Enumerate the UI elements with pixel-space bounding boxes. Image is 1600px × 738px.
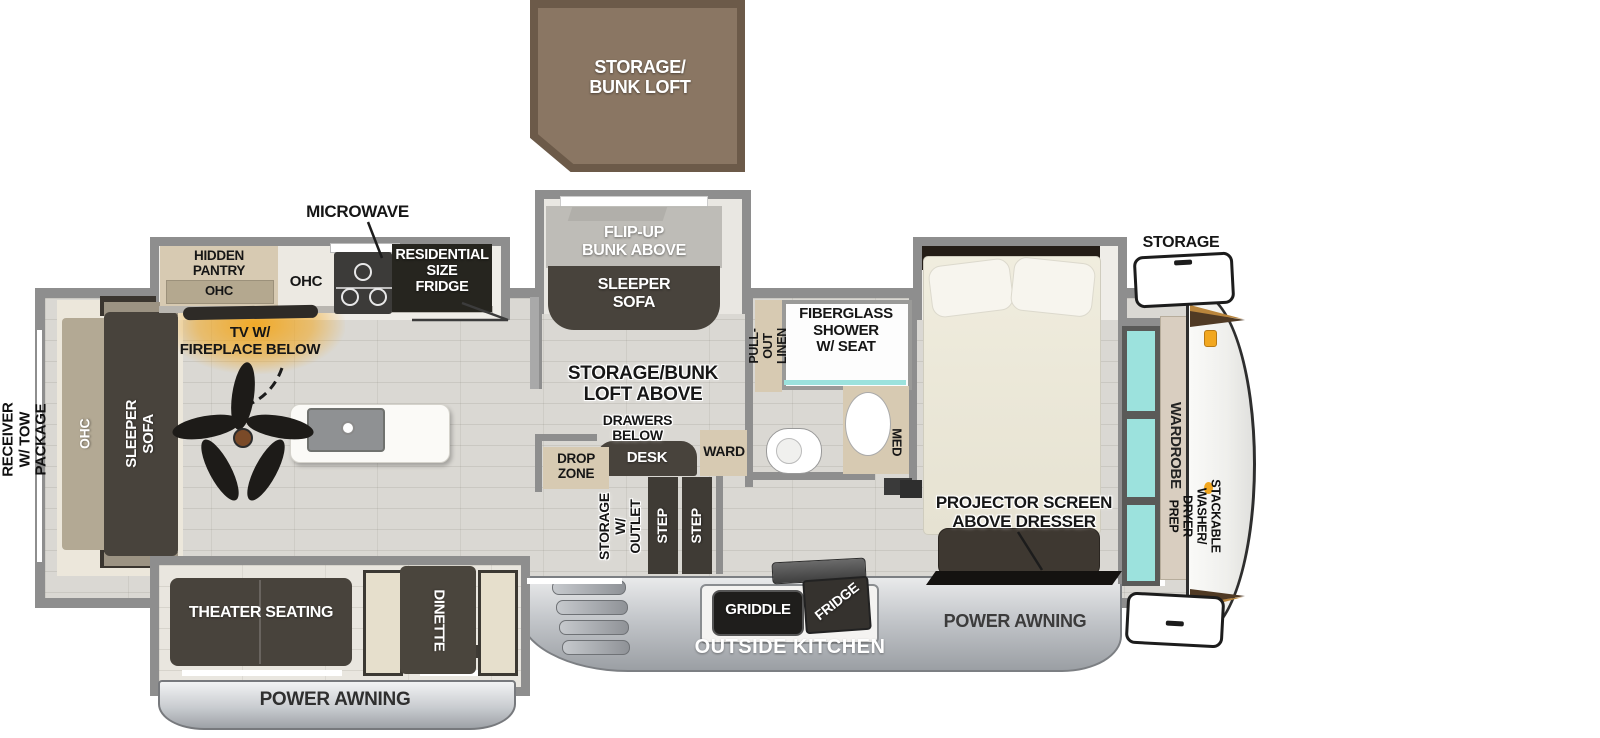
shower-label: FIBERGLASS SHOWER W/ SEAT [782, 306, 910, 356]
storage-outlet-label: STORAGE W/ OUTLET [598, 476, 642, 578]
med-label: MED [884, 412, 908, 472]
outside-kitchen-label: OUTSIDE KITCHEN [640, 636, 940, 658]
ward-label: WARD [698, 444, 750, 459]
dresser [938, 528, 1100, 576]
desk-wall-v [535, 434, 542, 492]
theater-seam [259, 580, 261, 664]
wall-stub [530, 297, 542, 389]
storage-bunk-loft-shape: STORAGE/ BUNK LOFT [530, 0, 745, 172]
entry-step-3 [559, 620, 629, 635]
tv-fireplace-label: TV W/ FIREPLACE BELOW [158, 325, 342, 358]
entry-step-2 [556, 600, 628, 615]
slide-sleeper-sofa-label: SLEEPER SOFA [548, 276, 720, 311]
shower-sill [784, 380, 906, 385]
drawers-below-label: DRAWERS BELOW [585, 413, 690, 444]
toilet-bowl [776, 438, 802, 464]
desk-label: DESK [597, 450, 697, 467]
pillow-left [927, 257, 1015, 319]
island-faucet [341, 421, 355, 435]
stove [334, 252, 392, 314]
rear-sleeper-sofa-label: SLEEPER SOFA [104, 312, 178, 556]
tv-bar [183, 305, 318, 320]
pillow-right [1009, 256, 1096, 318]
projector-label: PROJECTOR SCREEN ABOVE DRESSER [928, 494, 1120, 531]
step-2-label: STEP [682, 477, 712, 574]
hall-wall [716, 476, 723, 574]
microwave-label: MICROWAVE [290, 203, 425, 222]
step-1-label: STEP [648, 477, 678, 574]
hidden-pantry-label: HIDDEN PANTRY [162, 249, 276, 279]
rear-ohc-label: OHC [62, 318, 108, 550]
cap-handle [1204, 330, 1217, 347]
washer-prep-label: STACKABLE WASHER/ DRYER PREP [1168, 432, 1222, 600]
flip-up-bunk-label: FLIP-UP BUNK ABOVE [545, 224, 723, 259]
pull-out-linen-label: PULL-OUT LINEN [751, 300, 785, 392]
dinette-bench-right [478, 570, 518, 676]
lower-storage-compartment [1125, 591, 1226, 648]
griddle-label: GRIDDLE [712, 602, 804, 619]
power-awning-right-label: POWER AWNING [920, 612, 1110, 632]
dinette-label: DINETTE [400, 566, 476, 674]
theater-seating [170, 578, 352, 666]
rv-floorplan: STORAGE/ BUNK LOFT HIDDEN PANTRY OHC OHC… [0, 0, 1600, 738]
rear-window [37, 472, 42, 562]
storage-front-label: STORAGE [1126, 234, 1236, 252]
receiver-label: 2" RECEIVER W/ TOW PACKAGE [0, 356, 36, 524]
entry-step-4 [562, 640, 630, 655]
front-storage-compartment [1133, 251, 1236, 308]
residential-fridge-label: RESIDENTIAL SIZE FRIDGE [392, 248, 492, 296]
projector-screen-bar [926, 571, 1122, 585]
dinette-bench-left [363, 570, 403, 676]
slide-window-1 [182, 670, 342, 676]
power-awning-left-label: POWER AWNING [200, 690, 470, 711]
theater-label: THEATER SEATING [170, 604, 352, 622]
bedroom-threshold [900, 480, 922, 498]
kitchen-ohc-label: OHC [278, 274, 334, 291]
bottom-window [527, 578, 622, 584]
storage-bunk-loft-label: STORAGE/ BUNK LOFT [555, 58, 725, 98]
pantry-ohc-label: OHC [166, 284, 272, 298]
storage-bunk-loft-above-label: STORAGE/BUNK LOFT ABOVE [548, 364, 738, 406]
